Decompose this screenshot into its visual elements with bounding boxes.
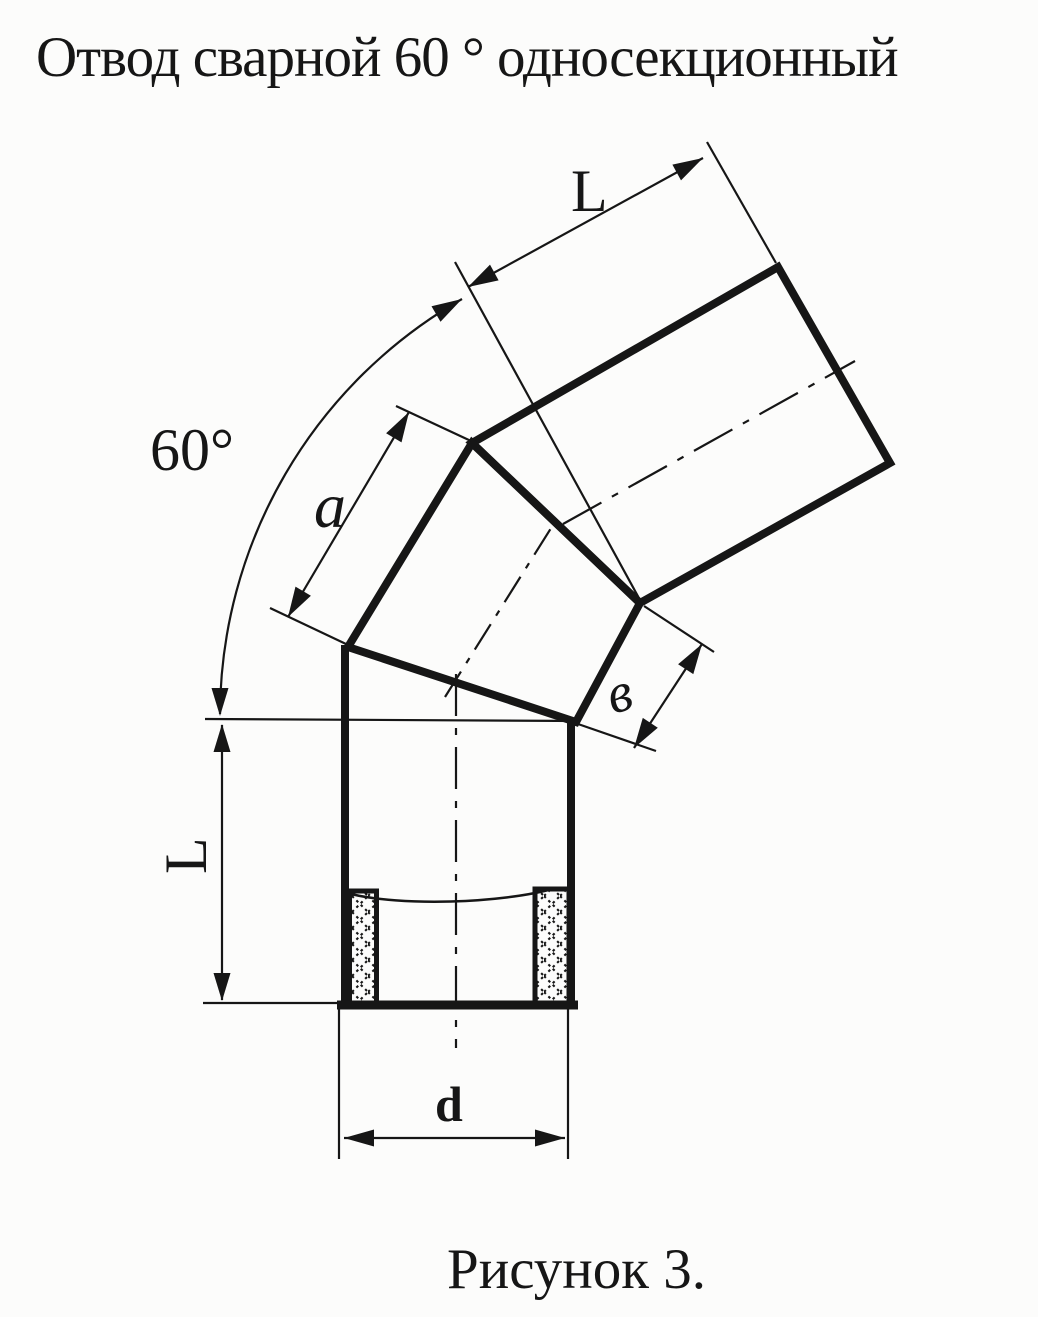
elbow-technical-drawing: Отвод сварной 60 ° односекционный L 60° [0, 0, 1038, 1317]
a-extension-bottom [270, 608, 346, 644]
dimension-angle: 60° [150, 299, 462, 716]
upper-length-label: L [571, 158, 608, 224]
d-arrow-right [535, 1130, 565, 1147]
figure-caption: Рисунок 3. [447, 1238, 706, 1301]
centerline-upper-pipe [563, 361, 855, 524]
v-arrow-top [678, 644, 702, 674]
middle-section-outline [348, 443, 640, 722]
wall-section-hatch-left [350, 891, 377, 1003]
centerline-middle-section [445, 525, 553, 697]
centerlines [445, 361, 855, 1048]
upper-L-extension-left [455, 262, 640, 600]
angle-label: 60° [150, 417, 234, 483]
angle-arc-arrow-top [432, 299, 463, 322]
joint-width-label: в [600, 660, 640, 726]
angle-arc-arrow-bottom [212, 688, 229, 716]
v-arrow-bottom [634, 718, 658, 748]
v-extension-top [644, 606, 714, 652]
diameter-label: d [435, 1076, 463, 1132]
lower-length-label: L [153, 837, 219, 874]
upper-L-extension-right [707, 142, 776, 263]
lower-L-reference-line-top [205, 719, 580, 721]
dimension-upper-length: L [455, 142, 776, 600]
a-extension-top [396, 406, 471, 441]
a-arrow-top [386, 412, 409, 442]
upper-L-arrow-left [468, 265, 499, 287]
section-side-label: a [314, 470, 346, 541]
wall-section-hatch-right [535, 889, 569, 1003]
pipe-outline [337, 267, 890, 1007]
upper-L-arrow-right [672, 158, 703, 180]
break-line [351, 888, 556, 902]
lower-L-arrow-bottom [214, 973, 231, 1001]
d-arrow-left [344, 1130, 374, 1147]
a-arrow-bottom [288, 587, 311, 617]
drawing-sheet: Отвод сварной 60 ° односекционный L 60° [0, 0, 1038, 1317]
lower-L-arrow-top [214, 724, 231, 752]
page-title: Отвод сварной 60 ° односекционный [36, 26, 898, 89]
dimension-d: d [339, 1007, 568, 1159]
